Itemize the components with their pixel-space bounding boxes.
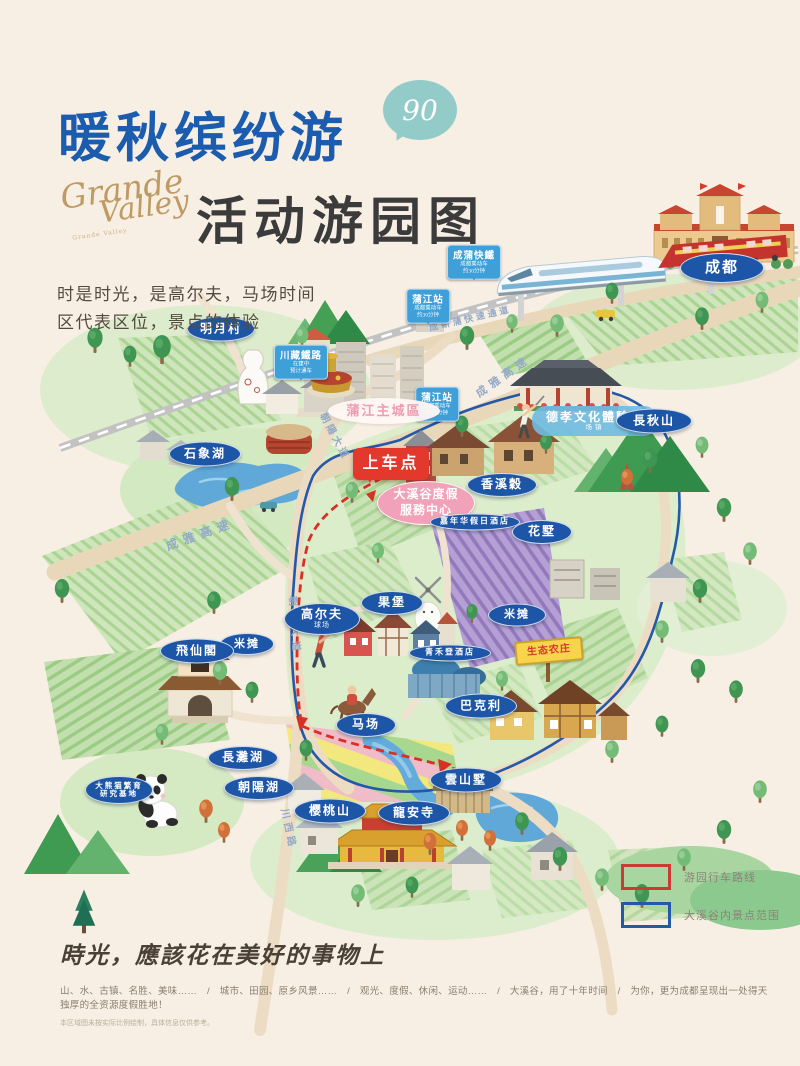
boundary-swatch bbox=[621, 902, 671, 928]
legend-boundary: 大溪谷内景点范围 bbox=[621, 902, 780, 928]
marker-guobao: 果堡 bbox=[361, 591, 423, 615]
marker-pujiang-city-label: 蒲江主城區 bbox=[346, 404, 421, 419]
marker-chengdu: 成都 bbox=[680, 253, 764, 283]
footer-note: 本区域图未按实际比例绘制，具体信息仅供参考。 bbox=[60, 1018, 772, 1028]
marker-xiangxigu: 香溪穀 bbox=[467, 473, 537, 497]
marker-hotel-qinghe-label: 青禾登酒店 bbox=[425, 649, 475, 658]
marker-shixianghu-label: 石象湖 bbox=[184, 447, 226, 460]
marker-feixiange-label: 飛仙閣 bbox=[176, 644, 218, 657]
marker-machang: 马场 bbox=[336, 713, 396, 737]
page-title: 暖秋缤纷游 bbox=[58, 96, 348, 172]
intro-text: 时是时光，是高尔夫，马场时间 区代表区位，景点的体验 bbox=[57, 281, 316, 336]
marker-hotel-jianianhua-label: 嘉年华假日酒店 bbox=[440, 518, 510, 527]
sign-chuanzang-rail: 川藏鐵路在建中预计通车 bbox=[274, 345, 328, 380]
marker-yunshanshu-label: 雲山墅 bbox=[445, 773, 487, 786]
boundary-label: 大溪谷内景点范围 bbox=[684, 907, 780, 923]
footer-slogan: 時光，應該花在美好的事物上 bbox=[60, 936, 772, 970]
sign-pujiang-station-1-label: 蒲江站 bbox=[412, 292, 444, 306]
legend: 游园行车路线 大溪谷内景点范围 bbox=[621, 864, 780, 940]
sign-pujiang-station-1: 蒲江站成都乘动车约30分钟 bbox=[406, 289, 450, 324]
marker-mitan-west-label: 米摊 bbox=[234, 638, 260, 650]
marker-pujiang-city: 蒲江主城區 bbox=[328, 398, 440, 424]
marker-guobao-label: 果堡 bbox=[378, 596, 406, 609]
marker-yingtaoshan: 樱桃山 bbox=[294, 799, 366, 824]
marker-longansi: 龍安寺 bbox=[378, 801, 450, 826]
marker-chaoyanghu-label: 朝陽湖 bbox=[238, 781, 280, 794]
route-label: 游园行车路线 bbox=[684, 869, 756, 885]
sign-chuanzang-rail-sub1: 在建中 bbox=[280, 362, 322, 369]
route-swatch bbox=[621, 864, 671, 890]
sign-chuanzang-rail-sub2: 预计通车 bbox=[280, 369, 322, 376]
marker-yunshanshu: 雲山墅 bbox=[430, 768, 502, 793]
steamer bbox=[266, 424, 312, 454]
marker-shixianghu: 石象湖 bbox=[169, 442, 241, 467]
marker-mitan-east-label: 米摊 bbox=[504, 609, 530, 621]
intro-line-1: 时是时光，是高尔夫，马场时间 bbox=[57, 281, 316, 309]
intro-line-2: 区代表区位，景点的体验 bbox=[57, 309, 316, 337]
legend-route: 游园行车路线 bbox=[621, 864, 780, 890]
marker-huashu-label: 花墅 bbox=[528, 525, 556, 538]
page-subtitle: 活动游园图 bbox=[196, 180, 486, 254]
marker-longansi-label: 龍安寺 bbox=[393, 806, 435, 819]
marker-chengdu-label: 成都 bbox=[705, 260, 739, 277]
marker-golf-course-sub: 球场 bbox=[314, 622, 330, 630]
marker-visitor-center-label: 大溪谷度假 bbox=[393, 487, 458, 503]
marker-yingtaoshan-label: 樱桃山 bbox=[309, 804, 351, 817]
sign-pujiang-station-1-sub2: 约30分钟 bbox=[412, 313, 444, 320]
sign-chengpu-rail-sub1: 成都乘动车 bbox=[453, 262, 495, 269]
autumn-tour-map-poster: 暖秋缤纷游 90 Grande Valley Grande Valley 活动游… bbox=[0, 0, 800, 1066]
marker-panda-base: 大熊猫繁育研究基地 bbox=[85, 776, 153, 804]
marker-bakeli-label: 巴克利 bbox=[460, 699, 502, 712]
marker-hotel-qinghe: 青禾登酒店 bbox=[409, 645, 491, 662]
marker-changqiushan: 長秋山 bbox=[616, 409, 692, 434]
marker-boarding-point-label: 上车点 bbox=[362, 455, 419, 473]
marker-huashu: 花墅 bbox=[512, 520, 572, 544]
bubble-text: 90 bbox=[402, 94, 438, 127]
sign-chengpu-rail-sub2: 约30分钟 bbox=[453, 269, 495, 276]
marker-changqiushan-label: 長秋山 bbox=[633, 414, 675, 427]
marker-mitan-east: 米摊 bbox=[488, 604, 546, 627]
marker-bakeli: 巴克利 bbox=[445, 694, 517, 719]
speech-bubble: 90 bbox=[383, 80, 457, 140]
footer: 時光，應該花在美好的事物上 山、水、古镇、名胜、美味…… / 城市、田园、原乡风… bbox=[60, 936, 772, 1028]
sign-pujiang-station-1-sub1: 成都乘动车 bbox=[412, 306, 444, 313]
marker-panda-base-label2: 研究基地 bbox=[100, 790, 138, 798]
marker-changtanhu: 長灘湖 bbox=[208, 746, 278, 770]
footer-line: 山、水、古镇、名胜、美味…… / 城市、田园、原乡风景…… / 观光、度假、休闲… bbox=[60, 983, 772, 1011]
marker-changtanhu-label: 長灘湖 bbox=[222, 751, 264, 764]
marker-chaoyanghu: 朝陽湖 bbox=[224, 776, 294, 800]
marker-hotel-jianianhua: 嘉年华假日酒店 bbox=[430, 514, 520, 531]
marker-feixiange: 飛仙閣 bbox=[160, 639, 234, 664]
marker-xiangxigu-label: 香溪穀 bbox=[481, 478, 523, 491]
sign-chuanzang-rail-label: 川藏鐵路 bbox=[280, 348, 322, 362]
marker-golf-course-label: 高尔夫 bbox=[301, 608, 343, 621]
marker-eco-farm-sign-label: 生态农庄 bbox=[527, 644, 572, 659]
marker-boarding-point: 上车点 bbox=[353, 448, 429, 480]
marker-golf-course: 高尔夫球场 bbox=[284, 603, 360, 635]
marker-machang-label: 马场 bbox=[352, 718, 380, 731]
marker-dexiao-culture-zone-sub: 场镇 bbox=[586, 424, 605, 431]
